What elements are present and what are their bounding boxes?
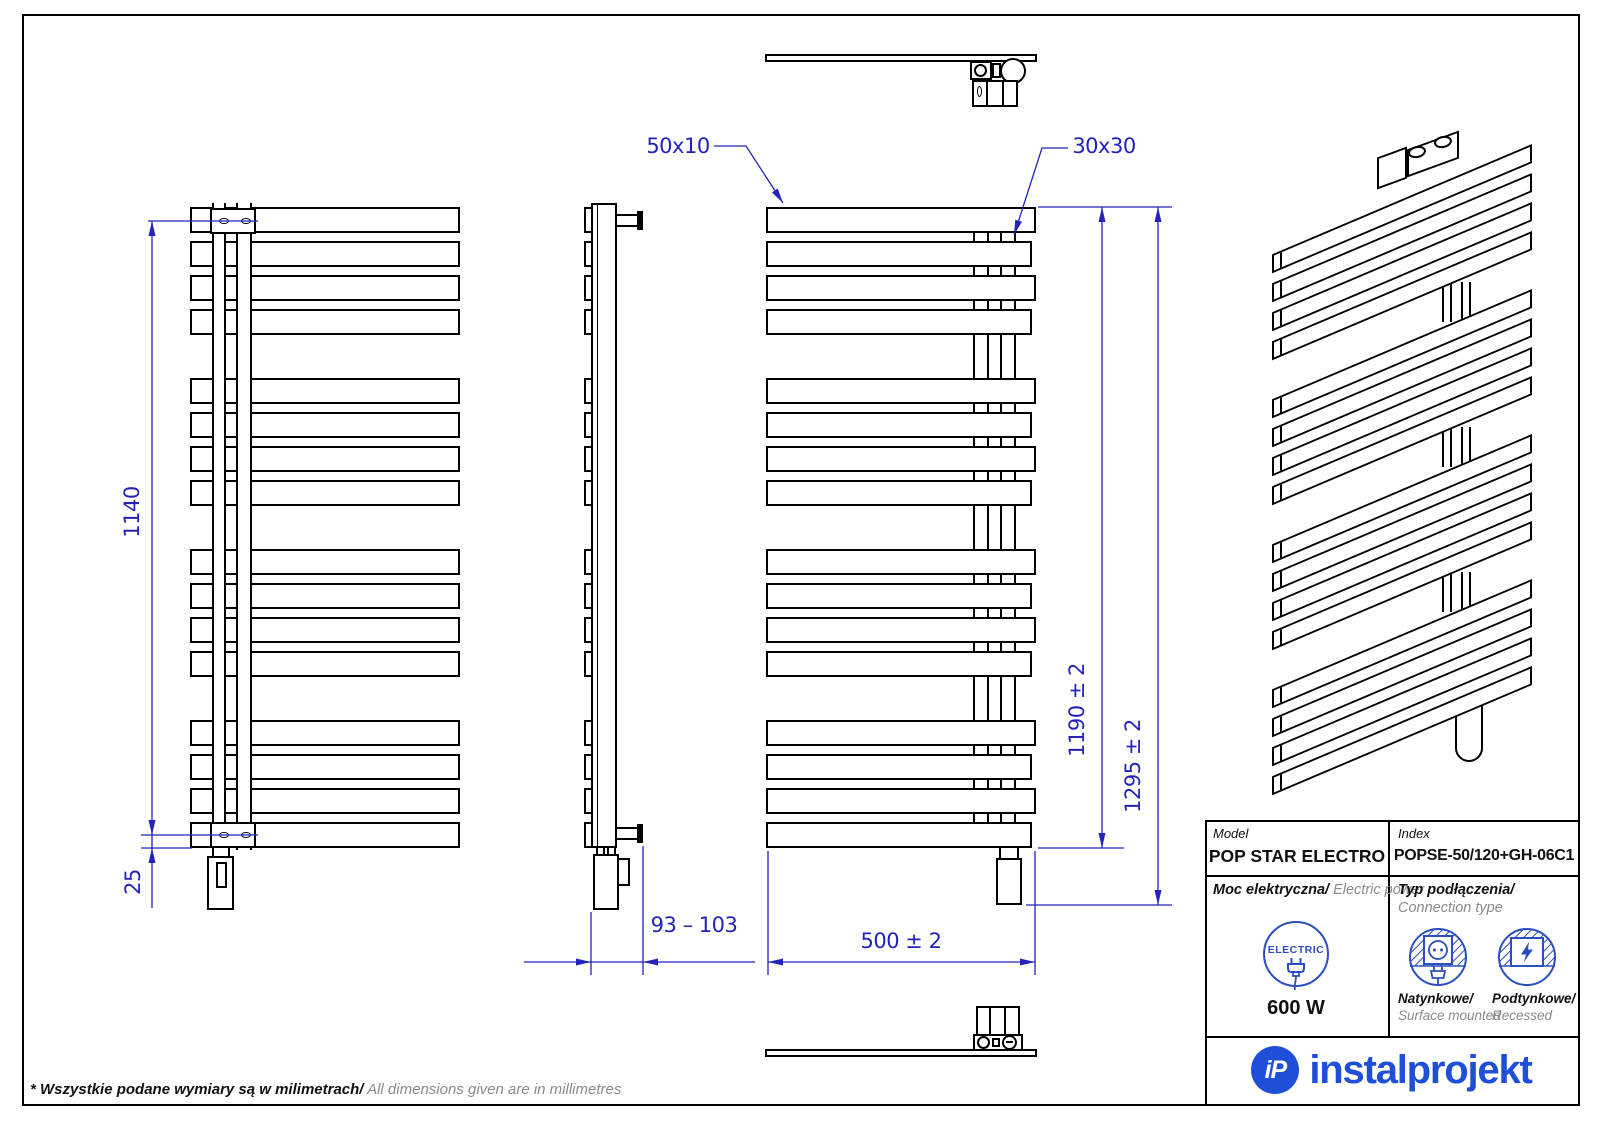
brand-logo-icon: iP — [1251, 1046, 1299, 1094]
collector-tube-line — [987, 744, 989, 756]
recessed-label-en: Recessed — [1492, 1008, 1552, 1023]
recessed-label-pl: Podtynkowe/ — [1492, 991, 1575, 1006]
power-header: Moc elektryczna/ Electric power — [1213, 882, 1424, 898]
radiator-bar — [766, 412, 1032, 438]
collector-tube-line — [1014, 778, 1016, 790]
collector-tube-line — [973, 470, 975, 482]
technical-drawing-sheet: Model POP STAR ELECTRO Index POPSE-50/12… — [0, 0, 1600, 1131]
model-value: POP STAR ELECTRO — [1205, 846, 1389, 867]
collector-tube-line — [1000, 675, 1002, 722]
bottom-view-cap-slot — [1006, 1041, 1013, 1043]
connection-label-pl: Typ podłączenia/ — [1398, 882, 1514, 898]
collector-tube-line — [987, 675, 989, 722]
collector-tube-line — [987, 607, 989, 619]
collector-tube-line — [987, 402, 989, 414]
iso-collector-tube — [1442, 572, 1452, 612]
collector-tube-line — [1000, 333, 1002, 380]
iso-collector-tube — [1442, 427, 1452, 467]
model-label: Model — [1213, 826, 1248, 841]
connection-label-en: Connection type — [1398, 900, 1503, 916]
collector-tube-line — [973, 436, 975, 448]
top-view-divider — [1002, 81, 1004, 106]
bottom-view-port — [977, 1036, 990, 1049]
surface-mounted-label-pl: Natynkowe/ — [1398, 991, 1473, 1006]
footnote-pl: * Wszystkie podane wymiary są w milimetr… — [30, 1081, 363, 1098]
collector-tube-line — [973, 402, 975, 414]
bracket-hole — [241, 218, 251, 224]
side-bracket-arm-bottom — [615, 827, 639, 840]
power-value: 600 W — [1246, 997, 1346, 1020]
radiator-bar — [766, 446, 1036, 472]
radiator-bar — [190, 309, 460, 335]
collector-tube-line — [973, 299, 975, 311]
radiator-bar — [766, 275, 1036, 301]
iso-bar-end-face — [1274, 252, 1282, 270]
collector-tube-line — [1000, 744, 1002, 756]
radiator-bar — [190, 788, 460, 814]
collector-tube-line — [987, 265, 989, 277]
collector-tube-line — [987, 333, 989, 380]
collector-tube-line — [1014, 402, 1016, 414]
radiator-bar — [766, 788, 1036, 814]
radiator-bar — [766, 480, 1032, 506]
collector-tube-line — [1014, 265, 1016, 277]
collector-tube-line — [973, 607, 975, 619]
radiator-bar — [766, 207, 1036, 233]
radiator-bar — [766, 754, 1032, 780]
radiator-bar — [766, 309, 1032, 335]
collector-tube — [212, 203, 226, 850]
radiator-bar — [190, 480, 460, 506]
radiator-bar — [190, 549, 460, 575]
iso-bar-end-face — [1274, 774, 1282, 792]
iso-bar-end-face — [1274, 339, 1282, 357]
collector-tube-line — [973, 675, 975, 722]
collector-tube-line — [973, 812, 975, 824]
radiator-bar — [190, 583, 460, 609]
collector-tube-line — [987, 470, 989, 482]
collector-tube-line — [987, 504, 989, 551]
collector-tube-line — [1000, 641, 1002, 653]
surface-mounted-label-en: Surface mounted — [1398, 1008, 1501, 1023]
collector-tube-line — [1014, 573, 1016, 585]
collector-tube-line — [987, 641, 989, 653]
radiator-bar — [190, 241, 460, 267]
collector-tube-line — [1000, 778, 1002, 790]
top-view-valve-circle — [974, 64, 987, 77]
radiator-bar — [766, 651, 1032, 677]
bottom-view-divider — [1004, 1007, 1006, 1035]
iso-bar-end-face — [1274, 745, 1282, 763]
iso-bar-end-face — [1274, 571, 1282, 589]
collector-tube-line — [973, 231, 975, 243]
iso-bar-end-face — [1274, 397, 1282, 415]
iso-bar-end-face — [1274, 687, 1282, 705]
radiator-bar — [766, 583, 1032, 609]
collector-tube-line — [973, 333, 975, 380]
collector-tube-line — [987, 573, 989, 585]
collector-tube-line — [973, 265, 975, 277]
iso-bar-end-face — [1274, 281, 1282, 299]
brand-logo: iP instalprojekt — [1205, 1038, 1578, 1102]
collector-tube-line — [973, 504, 975, 551]
bracket-hole — [219, 832, 229, 838]
collector-tube-line — [987, 778, 989, 790]
collector-tube-line — [1014, 812, 1016, 824]
collector-tube-line — [987, 812, 989, 824]
collector-tube-line — [1014, 675, 1016, 722]
collector-tube-line — [1014, 607, 1016, 619]
collector-tube-line — [987, 436, 989, 448]
bottom-view-bar — [765, 1049, 1037, 1057]
radiator-bar — [190, 446, 460, 472]
collector-tube-line — [1000, 470, 1002, 482]
collector-tube-line — [973, 573, 975, 585]
iso-bar-end-face — [1274, 629, 1282, 647]
right-heater-body — [996, 858, 1022, 905]
radiator-bar — [766, 617, 1036, 643]
radiator-bar — [766, 549, 1036, 575]
radiator-bar — [766, 378, 1036, 404]
bottom-view-divider — [989, 1007, 991, 1035]
side-heater-box — [617, 858, 630, 886]
collector-tube-line — [1014, 231, 1016, 243]
collector-tube-line — [1000, 607, 1002, 619]
footnote-en: All dimensions given are in millimetres — [367, 1081, 621, 1098]
collector-tube — [236, 203, 252, 850]
brand-monogram: iP — [1265, 1056, 1287, 1085]
brand-wordmark: instalprojekt — [1309, 1048, 1531, 1093]
iso-bar-end-face — [1274, 716, 1282, 734]
side-view-rail — [591, 203, 617, 848]
collector-tube-line — [1000, 812, 1002, 824]
radiator-bar — [766, 822, 1032, 848]
side-heater-body — [593, 854, 619, 910]
iso-bar-end-face — [1274, 542, 1282, 560]
connection-subheader: Connection type — [1398, 900, 1503, 916]
radiator-bar — [190, 720, 460, 746]
bottom-view-heater-block — [976, 1006, 1020, 1036]
collector-tube-line — [987, 299, 989, 311]
iso-bar-end-face — [1274, 310, 1282, 328]
side-bracket-cap-bottom — [637, 824, 643, 843]
iso-bar-end-face — [1274, 426, 1282, 444]
heater-slot — [216, 862, 227, 888]
radiator-bar — [190, 378, 460, 404]
top-view-divider — [986, 81, 988, 106]
collector-tube-line — [1000, 265, 1002, 277]
collector-tube-line — [987, 231, 989, 243]
collector-tube-line — [1000, 231, 1002, 243]
connection-header: Typ podłączenia/ — [1398, 882, 1514, 898]
radiator-bar — [766, 241, 1032, 267]
collector-tube-line — [1000, 436, 1002, 448]
bracket-hole — [241, 832, 251, 838]
iso-bar-end-face — [1274, 484, 1282, 502]
side-bracket-arm-top — [615, 214, 639, 227]
collector-tube-line — [1014, 470, 1016, 482]
collector-tube-line — [1014, 504, 1016, 551]
radiator-bar — [190, 617, 460, 643]
collector-tube-line — [1000, 504, 1002, 551]
collector-tube-line — [973, 778, 975, 790]
side-bracket-cap-top — [637, 211, 643, 230]
collector-tube-line — [1000, 573, 1002, 585]
iso-bar-end-face — [1274, 600, 1282, 618]
collector-tube-line — [1000, 299, 1002, 311]
collector-tube-line — [1014, 299, 1016, 311]
iso-collector-tube — [1442, 282, 1452, 322]
index-label: Index — [1398, 826, 1430, 841]
collector-tube-line — [1014, 744, 1016, 756]
collector-tube-line — [1014, 641, 1016, 653]
index-value: POPSE-50/120+GH-06C1 — [1390, 847, 1578, 865]
radiator-bar — [766, 720, 1036, 746]
bottom-view-coupler — [992, 1038, 1000, 1047]
side-view-rail-inner-line — [597, 205, 598, 846]
collector-tube-line — [1000, 402, 1002, 414]
power-label-pl: Moc elektryczna/ — [1213, 882, 1329, 898]
collector-tube-line — [1014, 436, 1016, 448]
electric-badge-icon: ELECTRIC — [1254, 912, 1338, 996]
top-view-slot — [977, 86, 982, 97]
radiator-bar — [190, 651, 460, 677]
bracket-hole — [219, 218, 229, 224]
footnote: * Wszystkie podane wymiary są w milimetr… — [30, 1081, 621, 1098]
radiator-bar — [190, 275, 460, 301]
top-view-bar — [765, 54, 1037, 62]
radiator-bar — [190, 754, 460, 780]
svg-text:ELECTRIC: ELECTRIC — [1268, 944, 1325, 956]
collector-tube-line — [1014, 333, 1016, 380]
surface-mounted-icon — [1405, 924, 1471, 990]
radiator-bar — [190, 412, 460, 438]
recessed-icon — [1494, 924, 1560, 990]
collector-tube-line — [973, 744, 975, 756]
iso-bar-end-face — [1274, 455, 1282, 473]
collector-tube-line — [973, 641, 975, 653]
